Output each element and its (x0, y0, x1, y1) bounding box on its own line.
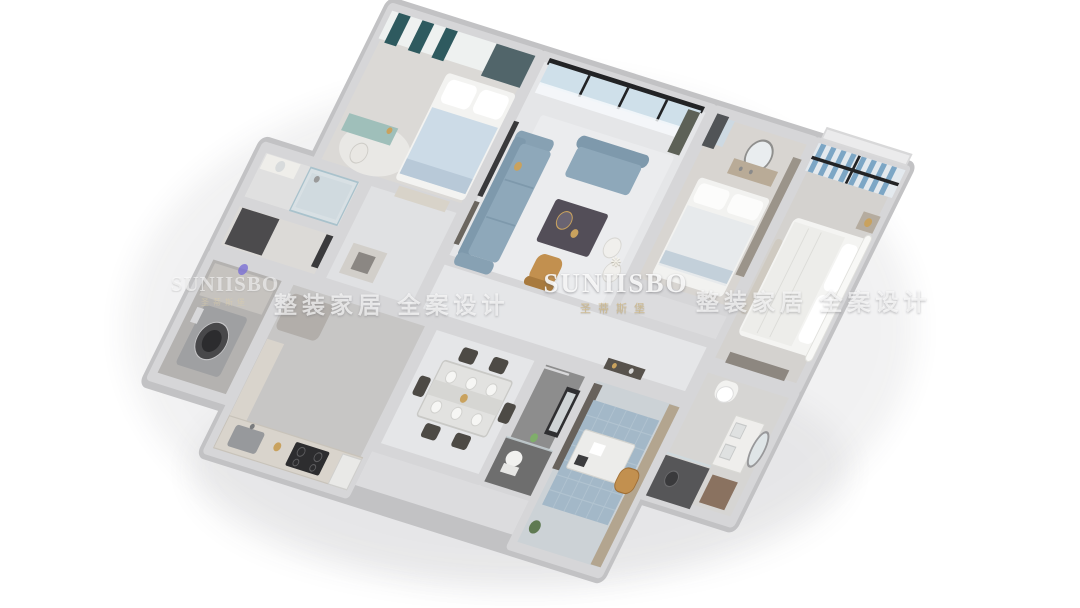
floorplan-render (0, 0, 1080, 608)
floorplan-screenshot: SUNIISBO 圣蒂斯堡 ❋ SUNIISBO 圣蒂斯堡 整装家居 全案设计 … (0, 0, 1080, 608)
